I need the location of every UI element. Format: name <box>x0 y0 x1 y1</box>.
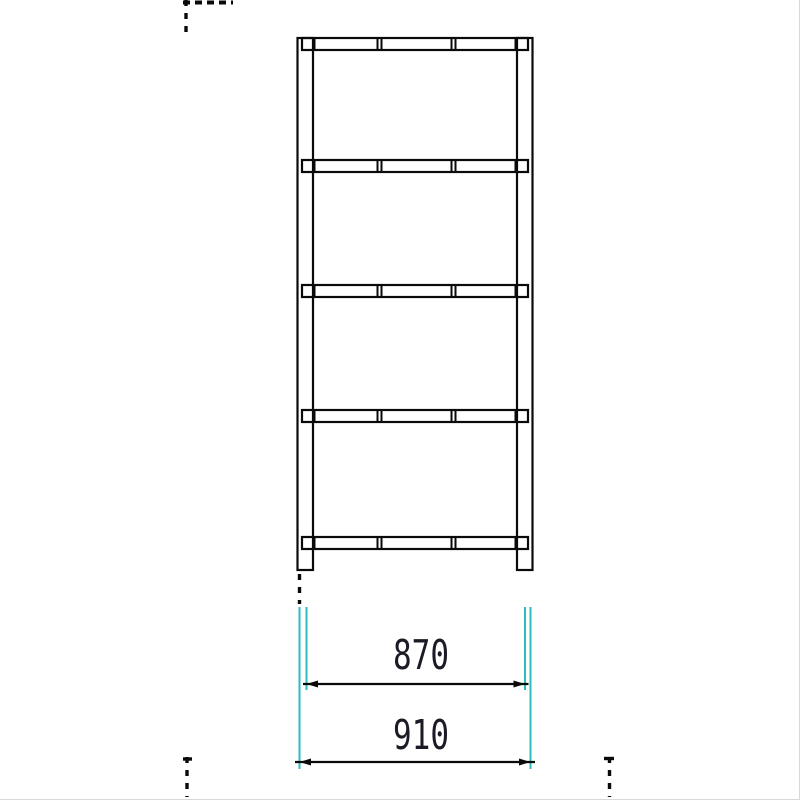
shelf-board <box>302 285 528 297</box>
shelf-tier-2 <box>302 160 528 172</box>
dimension-arrow-left <box>307 681 319 688</box>
right-post <box>517 38 533 570</box>
dimension-label-inner-width: 870 <box>393 631 449 679</box>
shelf-tier-5 <box>302 537 528 549</box>
shelf-board <box>302 537 528 549</box>
shelf-tier-1 <box>302 38 528 50</box>
dimension-inner-width: 870 <box>303 631 529 688</box>
drawing-canvas: 870 910 <box>0 0 800 800</box>
dimension-label-overall-width: 910 <box>393 711 449 759</box>
shelf-board <box>302 38 528 50</box>
dimension-arrow-right <box>514 681 526 688</box>
rack-elevation-drawing: 870 910 <box>0 0 800 800</box>
crop-mark-bottom-left <box>183 757 192 797</box>
shelf-tier-3 <box>302 285 528 297</box>
dimension-overall-width: 910 <box>295 711 535 766</box>
left-post <box>298 38 314 570</box>
shelf-board <box>302 410 528 422</box>
dimension-arrow-left <box>300 759 312 766</box>
shelf-tier-4 <box>302 410 528 422</box>
dimension-arrow-right <box>519 759 531 766</box>
crop-mark-top-left <box>183 0 233 37</box>
crop-mark-bottom-right <box>604 757 614 797</box>
shelf-board <box>302 160 528 172</box>
